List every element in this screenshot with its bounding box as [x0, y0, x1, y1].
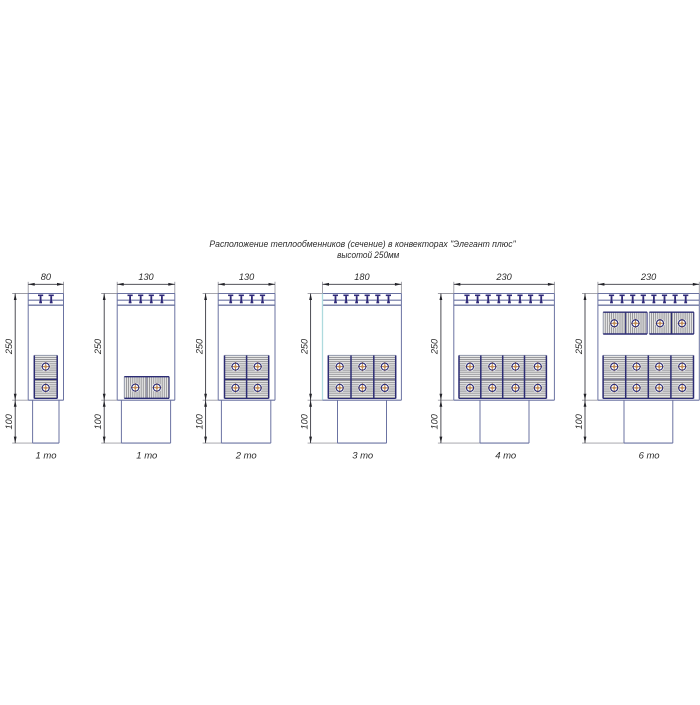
svg-text:250: 250: [430, 338, 440, 355]
svg-text:250: 250: [4, 338, 14, 355]
svg-text:130: 130: [138, 272, 154, 282]
svg-text:2 то: 2 то: [235, 450, 257, 461]
svg-text:230: 230: [640, 272, 657, 282]
svg-text:250: 250: [93, 338, 103, 355]
svg-text:80: 80: [41, 272, 52, 282]
svg-text:250: 250: [299, 338, 309, 355]
svg-text:230: 230: [495, 272, 512, 282]
svg-text:Расположение теплообменников (: Расположение теплообменников (сечение) в…: [209, 239, 516, 249]
svg-text:1 то: 1 то: [35, 450, 56, 461]
svg-text:100: 100: [194, 413, 204, 429]
svg-text:1 то: 1 то: [136, 450, 157, 461]
svg-text:100: 100: [430, 413, 440, 429]
svg-text:100: 100: [299, 413, 309, 429]
svg-text:250: 250: [574, 338, 584, 355]
svg-text:100: 100: [574, 413, 584, 429]
svg-text:180: 180: [354, 272, 370, 282]
svg-text:100: 100: [4, 413, 14, 429]
svg-text:250: 250: [194, 338, 204, 355]
svg-text:6 то: 6 то: [639, 450, 660, 461]
svg-text:130: 130: [239, 272, 255, 282]
svg-text:3 то: 3 то: [352, 450, 373, 461]
svg-text:высотой 250мм: высотой 250мм: [337, 250, 400, 260]
svg-text:100: 100: [93, 413, 103, 429]
svg-text:4 то: 4 то: [495, 450, 516, 461]
